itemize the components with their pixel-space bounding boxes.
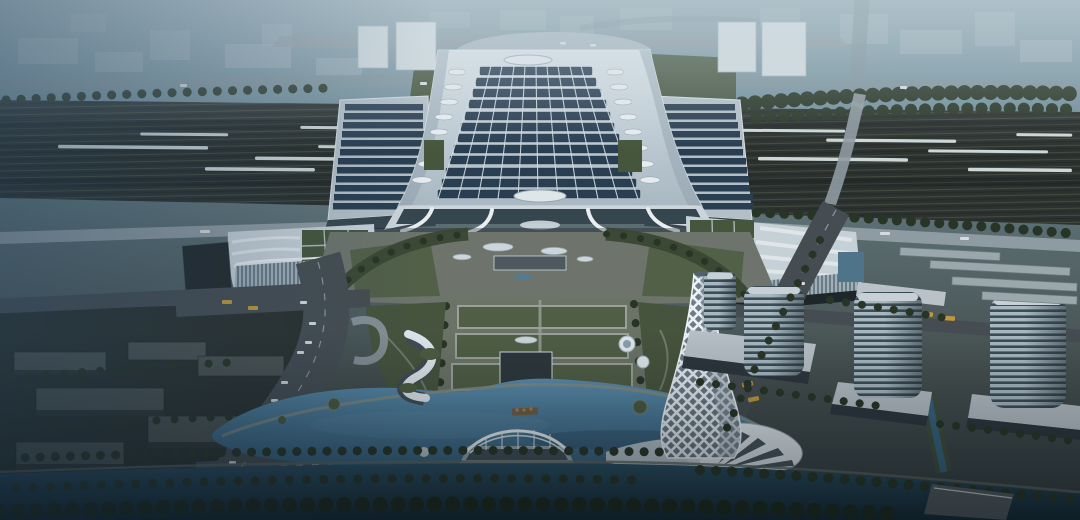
front-oval-skylight bbox=[514, 190, 566, 202]
bottom-vignette bbox=[0, 330, 1080, 520]
station-aerial-rendering bbox=[0, 0, 1080, 520]
rendering-canvas bbox=[0, 0, 1080, 520]
sunken-court bbox=[494, 256, 566, 270]
pond-oval bbox=[514, 274, 532, 279]
blue-glass-block bbox=[838, 252, 864, 282]
